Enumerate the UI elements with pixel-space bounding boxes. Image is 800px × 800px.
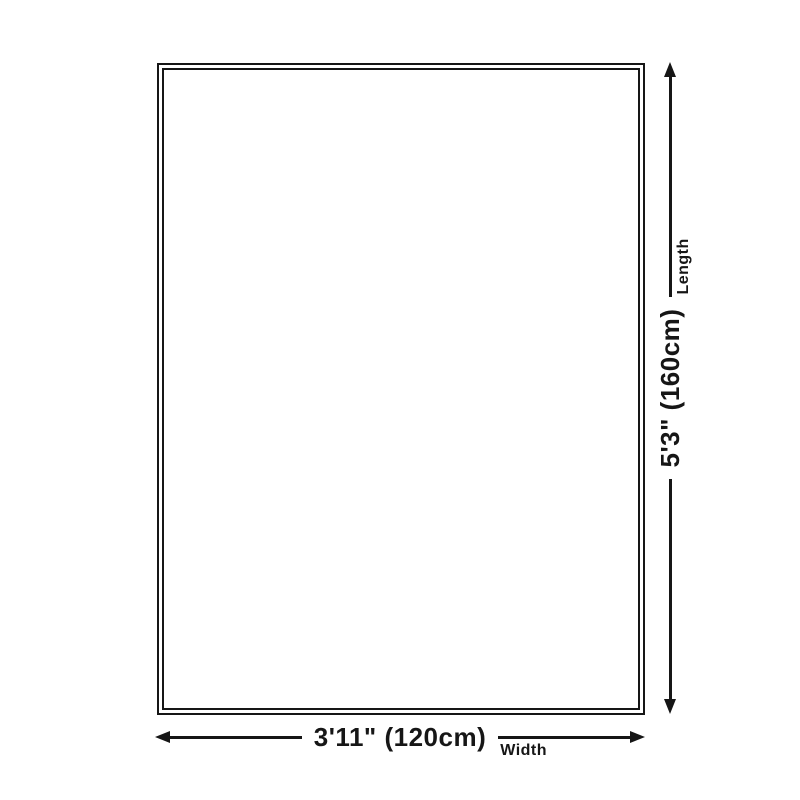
width-value: 3'11" (120cm) [314,724,486,750]
rug-outline [157,63,645,715]
width-label: Width [500,743,547,759]
length-arrow-line-upper: Length [669,77,672,297]
length-value: 5'3" (160cm) [657,309,683,468]
length-label: Length [676,238,692,294]
width-dimension-arrow: 3'11" (120cm) Width [155,720,645,754]
dimension-diagram: 5'3" (160cm) Length 3'11" (120cm) Width [0,0,800,800]
width-arrow-line-left [170,736,302,739]
arrow-up-icon [664,62,676,77]
arrow-right-icon [630,731,645,743]
length-dimension-arrow: 5'3" (160cm) Length [653,62,687,714]
length-arrow-line-lower [669,479,672,699]
arrow-left-icon [155,731,170,743]
width-arrow-line-right: Width [498,736,630,739]
arrow-down-icon [664,699,676,714]
rug-outline-inner-border [162,68,640,710]
